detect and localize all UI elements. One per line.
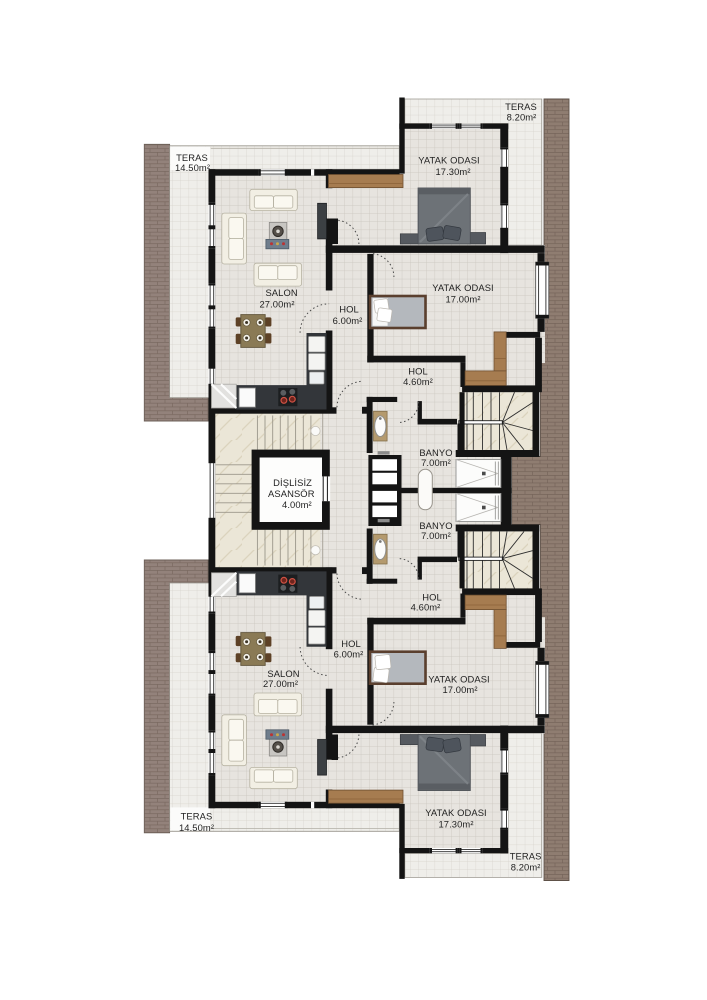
svg-text:17.30m²: 17.30m² xyxy=(435,166,470,177)
svg-text:6.00m²: 6.00m² xyxy=(333,315,363,326)
svg-text:17.00m²: 17.00m² xyxy=(445,293,480,304)
svg-text:YATAK ODASI: YATAK ODASI xyxy=(428,673,490,684)
svg-text:TERAS: TERAS xyxy=(505,101,537,112)
svg-text:27.00m²: 27.00m² xyxy=(263,678,298,689)
svg-text:7.00m²: 7.00m² xyxy=(421,530,451,541)
svg-text:HOL: HOL xyxy=(408,365,428,376)
svg-text:4.60m²: 4.60m² xyxy=(403,376,433,387)
svg-text:YATAK ODASI: YATAK ODASI xyxy=(425,807,487,818)
svg-text:17.00m²: 17.00m² xyxy=(442,684,477,695)
svg-text:6.00m²: 6.00m² xyxy=(334,648,364,659)
svg-text:TERAS: TERAS xyxy=(510,850,542,861)
svg-text:HOL: HOL xyxy=(341,638,361,649)
svg-text:17.30m²: 17.30m² xyxy=(438,818,473,829)
svg-text:8.20m²: 8.20m² xyxy=(511,861,541,872)
svg-text:DİŞLİSİZ: DİŞLİSİZ xyxy=(273,477,312,488)
svg-text:TERAS: TERAS xyxy=(181,810,213,821)
svg-text:14.50m²: 14.50m² xyxy=(175,162,210,173)
svg-text:7.00m²: 7.00m² xyxy=(421,457,451,468)
svg-text:YATAK ODASI: YATAK ODASI xyxy=(418,154,480,165)
svg-text:YATAK ODASI: YATAK ODASI xyxy=(432,282,494,293)
svg-text:4.00m²: 4.00m² xyxy=(282,499,312,510)
svg-text:SALON: SALON xyxy=(265,287,297,298)
svg-text:27.00m²: 27.00m² xyxy=(259,299,294,310)
svg-text:4.60m²: 4.60m² xyxy=(411,601,441,612)
svg-text:14.50m²: 14.50m² xyxy=(179,822,214,833)
svg-text:8.20m²: 8.20m² xyxy=(507,111,537,122)
svg-text:HOL: HOL xyxy=(339,303,359,314)
svg-text:ASANSÖR: ASANSÖR xyxy=(268,488,315,499)
